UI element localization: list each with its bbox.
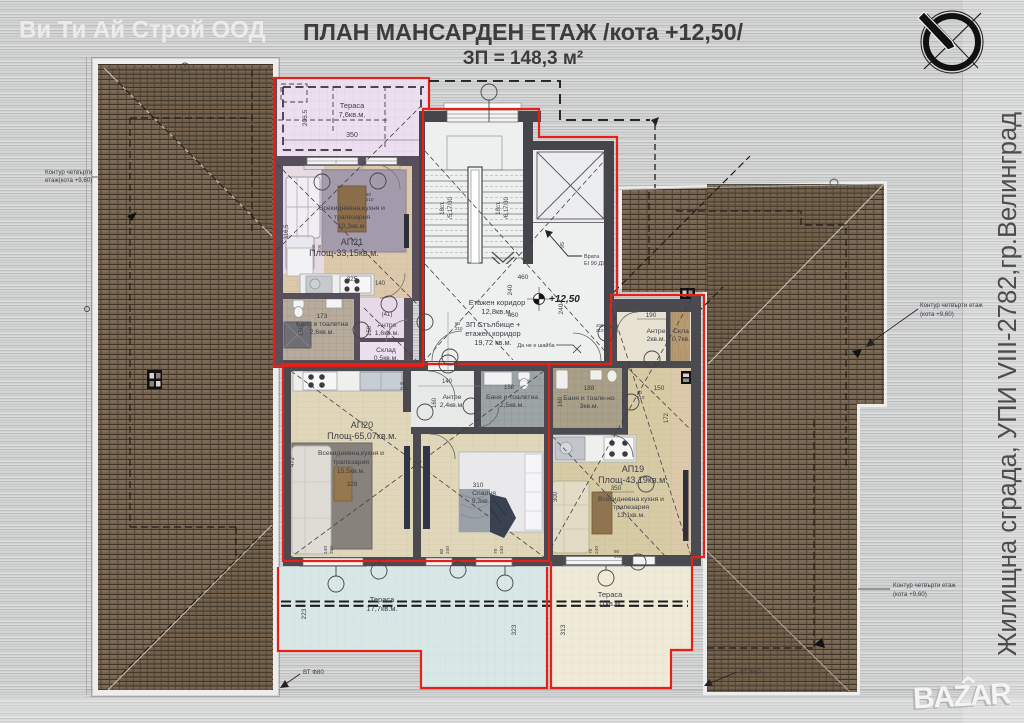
svg-text:210: 210 — [366, 197, 374, 202]
svg-text:Спалня: Спалня — [472, 490, 496, 497]
svg-text:11кв.м.: 11кв.м. — [598, 599, 622, 608]
svg-text:Всекидневна,кухня и: Всекидневна,кухня и — [318, 450, 384, 457]
svg-text:350: 350 — [346, 132, 358, 139]
svg-text:Баня и тоале-но: Баня и тоале-но — [563, 395, 615, 402]
svg-text:13,1кв.м.: 13,1кв.м. — [617, 512, 645, 519]
svg-text:Скла: Скла — [673, 328, 689, 335]
svg-text:Всекидневна кухня и: Всекидневна кухня и — [598, 496, 664, 503]
svg-text:Врата: Врата — [584, 254, 600, 260]
svg-text:240: 240 — [558, 303, 565, 314]
svg-text:(кота +9,60): (кота +9,60) — [893, 591, 927, 598]
svg-text:Площ-65,07кв.м.: Площ-65,07кв.м. — [327, 431, 397, 441]
svg-text:2кв.м.: 2кв.м. — [647, 336, 666, 343]
svg-text:етаж(кота +9,60): етаж(кота +9,60) — [45, 177, 92, 184]
svg-text:300: 300 — [553, 491, 559, 502]
svg-text:210: 210 — [400, 386, 408, 391]
svg-text:2,5кв.м.: 2,5кв.м. — [500, 402, 525, 409]
svg-text:160: 160 — [558, 396, 564, 407]
svg-text:325: 325 — [347, 276, 358, 283]
svg-text:Площ-43,19кв.м.: Площ-43,19кв.м. — [598, 475, 668, 485]
svg-text:240: 240 — [594, 546, 600, 554]
svg-text:328: 328 — [347, 481, 358, 488]
svg-text:80: 80 — [439, 548, 445, 554]
svg-text:150: 150 — [654, 385, 665, 392]
svg-text:95: 95 — [560, 242, 566, 248]
svg-text:158: 158 — [504, 385, 515, 391]
svg-text:205: 205 — [317, 244, 322, 252]
svg-text:Антре: Антре — [647, 328, 666, 335]
svg-text:210: 210 — [614, 554, 622, 559]
svg-text:Тераса: Тераса — [598, 590, 623, 599]
svg-text:140: 140 — [442, 379, 453, 385]
svg-text:Жилищна сграда, УПИ VIII-2782,: Жилищна сграда, УПИ VIII-2782,гр.Велингр… — [994, 112, 1022, 656]
svg-text:2,4кв.м.: 2,4кв.м. — [440, 402, 465, 409]
svg-text:323: 323 — [511, 624, 518, 635]
svg-text:2,6кв.м.: 2,6кв.м. — [310, 329, 335, 336]
svg-text:Тераса: Тераса — [340, 101, 365, 110]
svg-text:/5,17/30: /5,17/30 — [448, 196, 454, 218]
svg-text:150: 150 — [299, 325, 305, 336]
svg-text:310: 310 — [473, 482, 484, 489]
svg-text:17,7кв.м.: 17,7кв.м. — [366, 604, 397, 613]
svg-text:140: 140 — [323, 546, 329, 554]
svg-text:210: 210 — [455, 326, 463, 331]
svg-text:ЗП Стълбище +: ЗП Стълбище + — [465, 320, 521, 329]
svg-text:240: 240 — [507, 284, 514, 295]
svg-text:140: 140 — [311, 244, 316, 252]
svg-text:Склад: Склад — [376, 347, 396, 354]
svg-text:Да не е шайба: Да не е шайба — [517, 342, 555, 349]
svg-text:/6,17/30: /6,17/30 — [504, 196, 510, 218]
svg-text:7,6кв.м.: 7,6кв.м. — [338, 110, 365, 119]
svg-text:Етажен коридор: Етажен коридор — [469, 298, 526, 307]
svg-text:EI 90 ДУ: EI 90 ДУ — [584, 261, 606, 267]
svg-text:(кота +9,60): (кота +9,60) — [920, 311, 954, 318]
svg-text:142: 142 — [603, 322, 608, 330]
svg-text:3кв.м.: 3кв.м. — [580, 403, 599, 410]
svg-text:240: 240 — [499, 546, 505, 554]
svg-text:15,5кв.м.: 15,5кв.м. — [337, 468, 365, 475]
svg-text:трапезария: трапезария — [333, 459, 369, 466]
svg-text:240: 240 — [445, 546, 451, 554]
svg-text:70: 70 — [493, 548, 499, 554]
svg-text:Антре: Антре — [443, 394, 462, 401]
svg-text:313: 313 — [560, 624, 567, 635]
svg-text:70: 70 — [588, 548, 594, 554]
svg-text:190: 190 — [646, 312, 657, 319]
svg-text:Тераса: Тераса — [370, 595, 395, 604]
svg-text:Ви Ти Ай Строй ООД: Ви Ти Ай Строй ООД — [19, 17, 266, 44]
svg-text:ЗП = 148,3 м²: ЗП = 148,3 м² — [463, 48, 583, 69]
svg-text:Всекидневна,кухня и: Всекидневна,кухня и — [319, 205, 385, 212]
svg-text:240: 240 — [329, 546, 335, 554]
svg-text:Баня и тоалетна: Баня и тоалетна — [486, 394, 538, 401]
svg-text:Контур четвърти етаж: Контур четвърти етаж — [920, 302, 984, 309]
svg-text:173: 173 — [317, 313, 328, 320]
svg-text:223: 223 — [301, 608, 308, 619]
svg-text:18ст.: 18ст. — [440, 201, 446, 215]
svg-text:460: 460 — [518, 274, 529, 281]
svg-text:АП19: АП19 — [622, 464, 644, 474]
svg-text:трапезария: трапезария — [613, 504, 649, 511]
svg-text:316,5: 316,5 — [284, 224, 290, 240]
svg-text:140: 140 — [375, 281, 386, 287]
svg-text:172: 172 — [664, 412, 670, 423]
svg-text:ПЛАН МАНСАРДЕН ЕТАЖ /кота +12,: ПЛАН МАНСАРДЕН ЕТАЖ /кота +12,50/ — [303, 19, 744, 45]
svg-text:(41): (41) — [382, 312, 393, 318]
svg-text:350: 350 — [611, 485, 622, 492]
svg-text:460: 460 — [508, 312, 519, 319]
svg-text:9,3кв.м.: 9,3кв.м. — [472, 498, 497, 505]
svg-text:ВТ Ф80: ВТ Ф80 — [303, 669, 324, 676]
svg-text:етажен коридор: етажен коридор — [465, 329, 520, 338]
svg-text:19,72 кв.м.: 19,72 кв.м. — [474, 338, 511, 347]
svg-text:206.5: 206.5 — [302, 109, 309, 126]
svg-text:трапезария: трапезария — [334, 214, 370, 221]
svg-text:Контур четвърти: Контур четвърти — [45, 169, 93, 176]
svg-text:+12,50: +12,50 — [549, 294, 580, 305]
svg-text:160: 160 — [432, 397, 438, 408]
svg-text:188: 188 — [584, 385, 595, 392]
svg-text:ВТ Ф60: ВТ Ф60 — [740, 669, 761, 676]
svg-text:18ст.: 18ст. — [496, 201, 502, 215]
svg-text:0,7кв.: 0,7кв. — [672, 336, 690, 343]
svg-text:Контур четвърти етаж: Контур четвърти етаж — [893, 582, 957, 589]
